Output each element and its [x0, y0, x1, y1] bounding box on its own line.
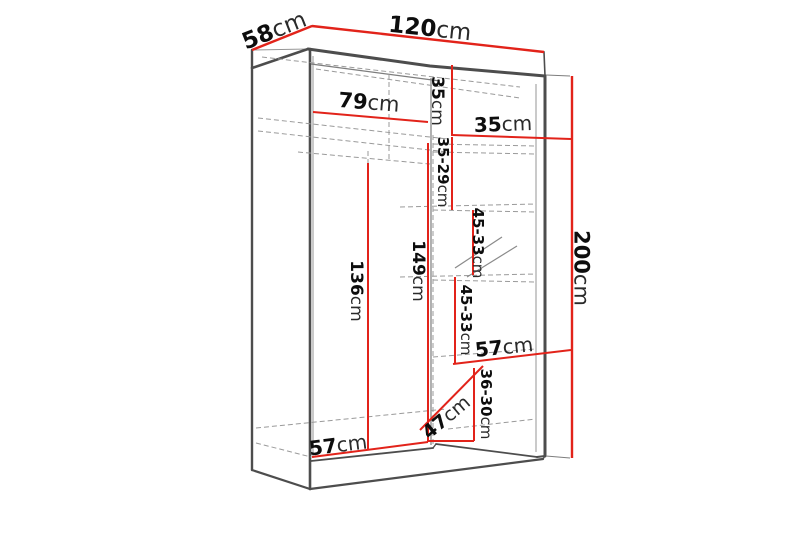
floor-back-line: [256, 409, 446, 428]
shelf3-front-line: [433, 280, 536, 282]
label-shelf-gap-3: 45-33cm: [457, 285, 475, 356]
extension-line-bottom: [546, 456, 570, 458]
shelf2-back-line: [400, 204, 536, 207]
label-lower-right-depth: 47cm: [418, 391, 475, 443]
label-shelf-gap-2: 45-33cm: [469, 208, 487, 279]
label-interior-height: 149cm: [408, 240, 428, 301]
extension-line-top: [546, 75, 570, 76]
top-shelf-front-line: [258, 131, 448, 152]
front-top-edge: [308, 49, 545, 76]
floor-front-line: [256, 443, 311, 457]
label-shelf-gap-4: 36-30cm: [477, 369, 495, 440]
label-shelf-gap-1: 35-29cm: [434, 137, 452, 208]
label-overall-height: 200cm: [570, 230, 594, 306]
label-right-section-width: 35cm: [473, 111, 532, 137]
label-hanging-height: 136cm: [346, 260, 366, 321]
plinth-bottom-edge: [310, 459, 543, 489]
label-overall-width: 120cm: [387, 12, 472, 47]
label-top-section-height: 35cm: [427, 76, 447, 126]
diagram-canvas: 58cm 120cm 200cm 79cm 35cm 35cm 35-29cm …: [0, 0, 800, 533]
label-lower-shelf-width: 57cm: [474, 332, 535, 362]
door-top-rail-line: [311, 64, 440, 81]
wardrobe-dimension-diagram: 58cm 120cm 200cm 79cm 35cm 35cm 35-29cm …: [0, 0, 800, 533]
bottom-edge-right: [436, 444, 537, 457]
left-panel-bottom-edge: [252, 470, 310, 489]
label-overall-depth: 58cm: [238, 7, 310, 56]
hanging-rail-line: [298, 152, 430, 164]
label-left-section-width: 79cm: [338, 88, 401, 117]
left-panel-top-edge: [252, 49, 308, 68]
